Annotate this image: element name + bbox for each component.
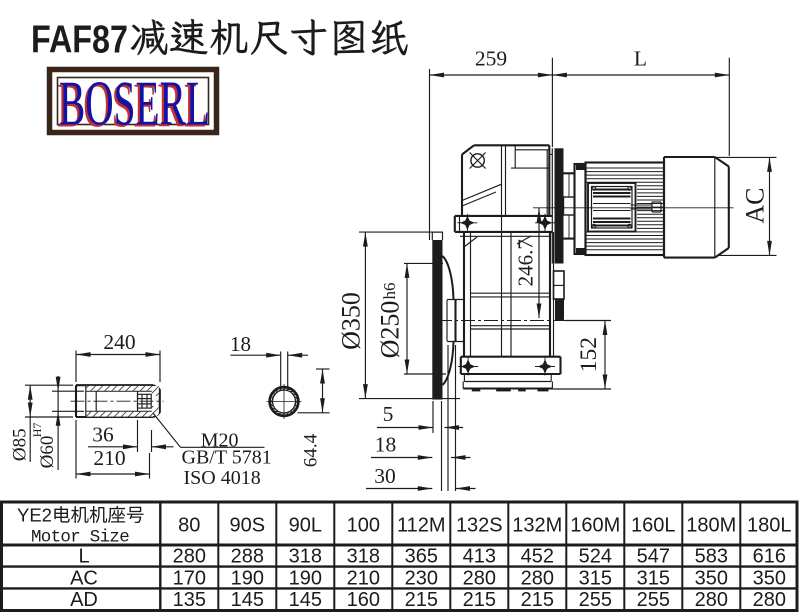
svg-text:AD: AD [70,589,98,611]
svg-text:90L: 90L [289,515,322,537]
svg-text:BOSERL: BOSERL [59,69,210,139]
svg-text:Ø350: Ø350 [337,292,366,350]
svg-text:145: 145 [289,589,322,611]
svg-text:616: 616 [753,546,786,568]
svg-text:Ø250: Ø250 [375,301,404,359]
svg-text:18: 18 [375,433,397,457]
svg-text:Ø85: Ø85 [10,428,31,461]
svg-text:215: 215 [405,589,438,611]
svg-text:255: 255 [637,589,670,611]
svg-text:160: 160 [347,589,380,611]
svg-text:L: L [78,546,89,568]
svg-text:YE2: YE2 [17,505,52,526]
svg-text:180L: 180L [747,515,792,537]
svg-text:152: 152 [576,337,602,372]
svg-text:365: 365 [405,546,438,568]
svg-text:215: 215 [463,589,496,611]
svg-text:132S: 132S [456,515,503,537]
svg-text:350: 350 [695,567,728,589]
svg-text:190: 190 [231,567,264,589]
svg-text:280: 280 [463,567,496,589]
svg-text:230: 230 [405,567,438,589]
svg-text:210: 210 [93,446,125,470]
svg-text:Ø60: Ø60 [37,436,58,469]
svg-text:h6: h6 [380,283,399,300]
svg-text:GB/T 5781: GB/T 5781 [182,447,272,469]
svg-text:AC: AC [70,567,98,589]
svg-text:100: 100 [347,515,380,537]
svg-text:318: 318 [289,546,322,568]
svg-text:145: 145 [231,589,264,611]
svg-text:318: 318 [347,546,380,568]
svg-text:64.4: 64.4 [300,433,321,467]
svg-text:280: 280 [521,567,554,589]
svg-text:90S: 90S [230,515,266,537]
svg-text:583: 583 [695,546,728,568]
svg-text:180M: 180M [686,515,736,537]
svg-text:315: 315 [637,567,670,589]
svg-text:524: 524 [579,546,612,568]
svg-text:36: 36 [92,423,114,447]
svg-text:246.7: 246.7 [514,239,538,286]
svg-text:259: 259 [475,47,507,71]
svg-text:413: 413 [463,546,496,568]
svg-text:280: 280 [173,546,206,568]
svg-text:547: 547 [637,546,670,568]
svg-text:FAF87: FAF87 [31,19,128,62]
svg-text:160L: 160L [631,515,676,537]
svg-text:452: 452 [521,546,554,568]
svg-text:210: 210 [347,567,380,589]
svg-text:Motor Size: Motor Size [31,528,129,548]
svg-text:240: 240 [103,330,135,354]
svg-text:135: 135 [173,589,206,611]
svg-text:18: 18 [230,332,251,356]
svg-text:190: 190 [289,567,322,589]
svg-text:112M: 112M [397,515,446,537]
svg-text:5: 5 [383,402,394,426]
svg-text:280: 280 [695,589,728,611]
svg-text:ISO 4018: ISO 4018 [184,467,261,489]
svg-text:350: 350 [753,567,786,589]
svg-text:215: 215 [521,589,554,611]
svg-text:160M: 160M [570,515,620,537]
svg-text:288: 288 [231,546,264,568]
svg-text:170: 170 [173,567,206,589]
svg-text:132M: 132M [512,515,562,537]
svg-text:AC: AC [741,188,770,224]
svg-text:L: L [634,47,647,71]
svg-text:280: 280 [753,589,786,611]
svg-text:H7: H7 [30,423,44,438]
svg-text:255: 255 [579,589,612,611]
svg-text:30: 30 [374,464,396,488]
svg-text:315: 315 [579,567,612,589]
svg-text:80: 80 [178,515,200,537]
